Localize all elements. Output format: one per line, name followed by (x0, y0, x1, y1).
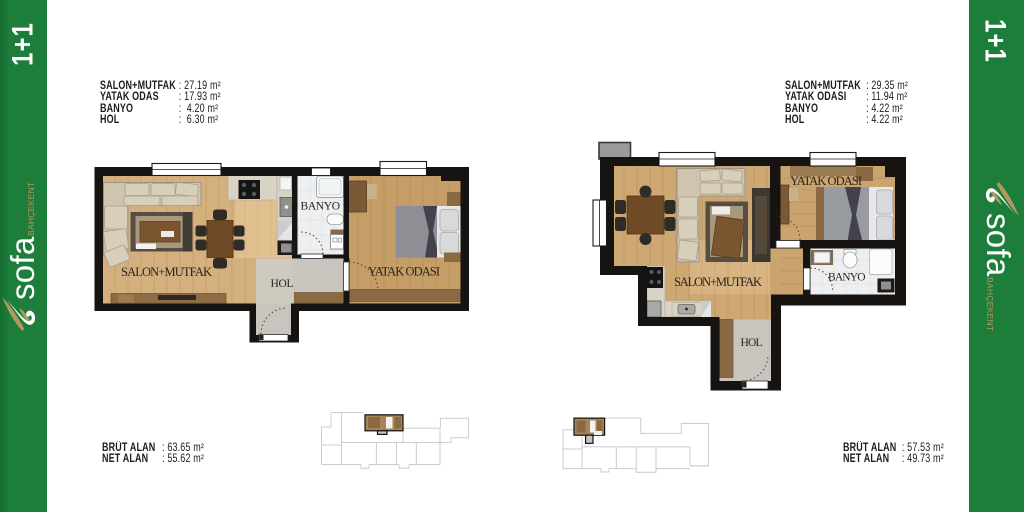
svg-text:BANYO: BANYO (828, 272, 866, 284)
svg-text:SALON+MUTFAK: SALON+MUTFAK (121, 265, 212, 279)
svg-text:HOL: HOL (271, 278, 294, 290)
svg-text:HOL: HOL (741, 337, 763, 349)
svg-text:SALON+MUTFAK: SALON+MUTFAK (674, 275, 762, 289)
svg-text:YATAK ODASI: YATAK ODASI (368, 265, 440, 279)
svg-text:YATAK ODASI: YATAK ODASI (790, 174, 862, 188)
svg-text:BANYO: BANYO (301, 201, 341, 213)
